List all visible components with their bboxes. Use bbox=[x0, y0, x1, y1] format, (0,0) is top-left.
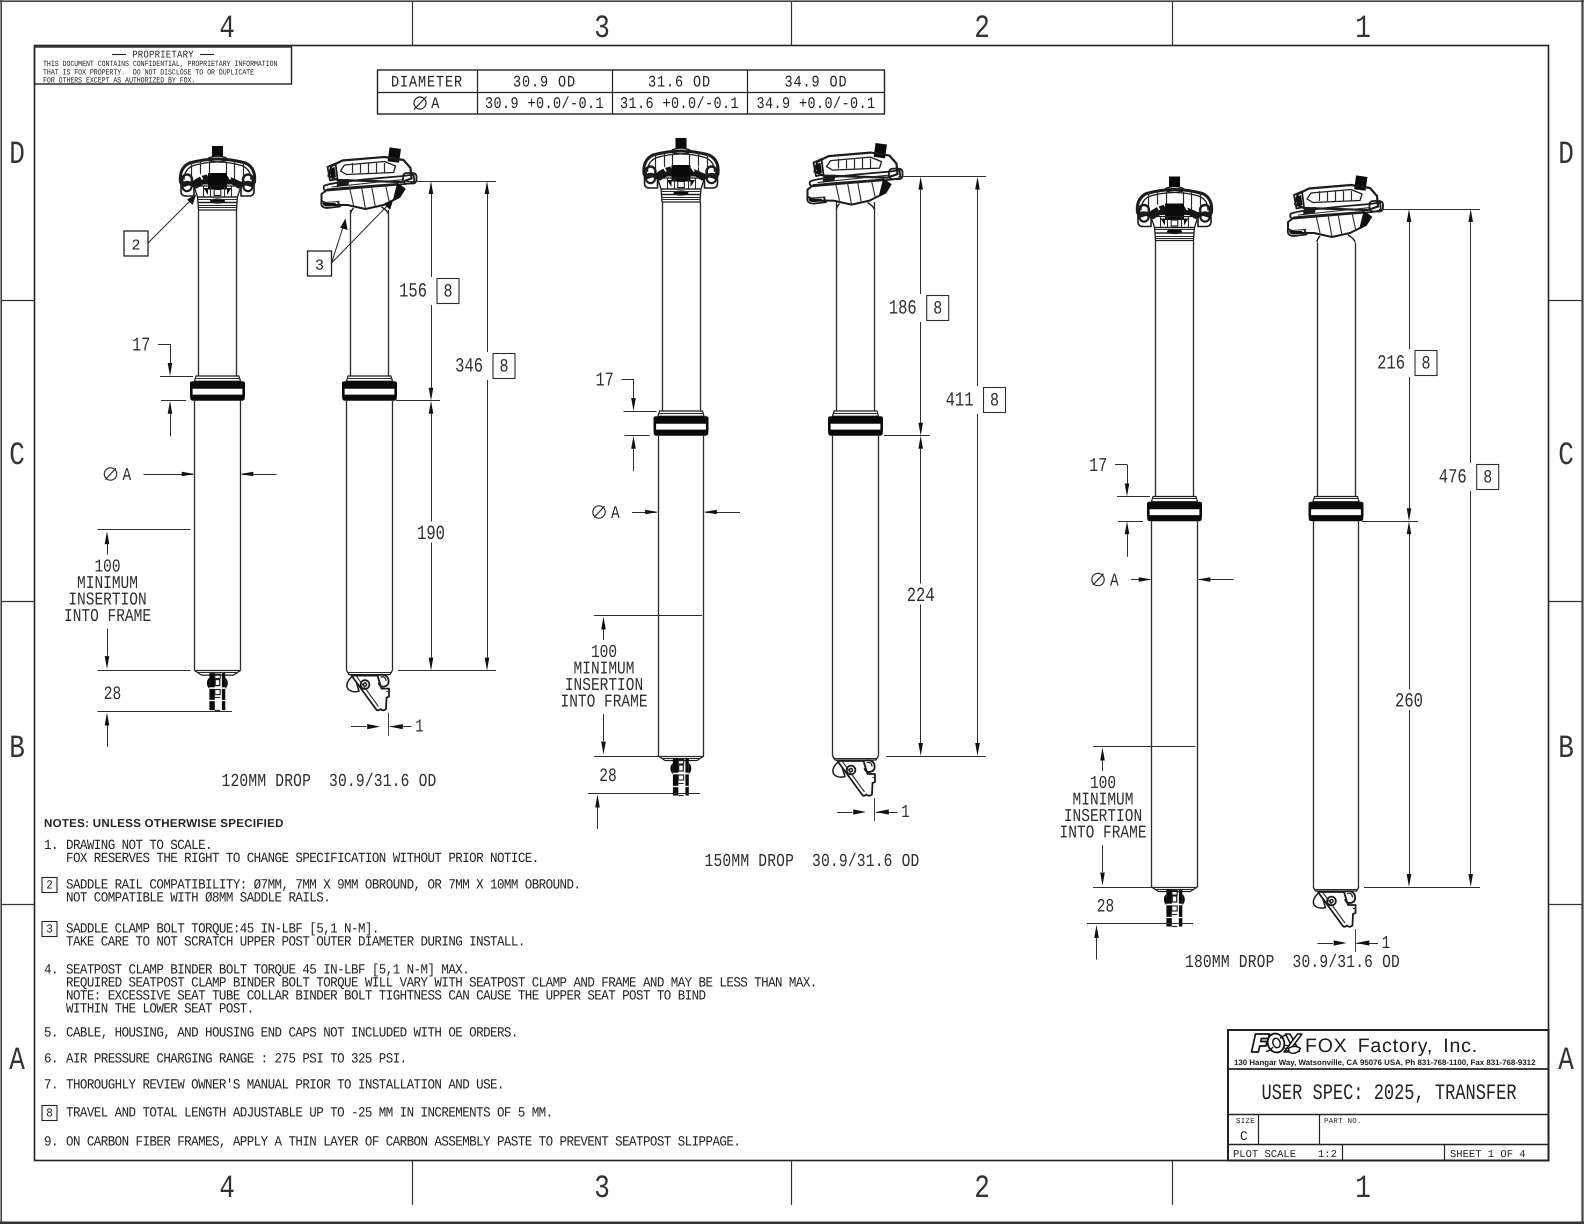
svg-text:C: C bbox=[1558, 437, 1574, 475]
svg-text:186: 186 bbox=[889, 297, 917, 320]
svg-text:A: A bbox=[611, 504, 620, 524]
svg-text:TRAVEL AND TOTAL LENGTH ADJUST: TRAVEL AND TOTAL LENGTH ADJUSTABLE UP TO… bbox=[66, 1105, 553, 1121]
svg-text:8: 8 bbox=[1483, 468, 1492, 489]
svg-text:C: C bbox=[1240, 1129, 1248, 1144]
svg-text:17: 17 bbox=[1089, 456, 1107, 478]
svg-text:THIS DOCUMENT CONTAINS CONFIDE: THIS DOCUMENT CONTAINS CONFIDENTIAL, PRO… bbox=[43, 60, 278, 68]
svg-text:17: 17 bbox=[596, 370, 614, 392]
svg-text:B: B bbox=[1558, 730, 1574, 768]
svg-text:8: 8 bbox=[990, 391, 999, 412]
svg-text:5.: 5. bbox=[44, 1025, 58, 1041]
svg-text:180MM DROP 30.9/31.6 OD: 180MM DROP 30.9/31.6 OD bbox=[1185, 953, 1400, 973]
svg-text:260: 260 bbox=[1395, 690, 1423, 713]
svg-text:224: 224 bbox=[907, 584, 935, 607]
svg-text:150MM DROP 30.9/31.6 OD: 150MM DROP 30.9/31.6 OD bbox=[705, 852, 920, 872]
svg-text:TAKE CARE TO NOT SCRATCH UPPER: TAKE CARE TO NOT SCRATCH UPPER POST OUTE… bbox=[66, 934, 525, 950]
svg-text:2: 2 bbox=[974, 10, 990, 48]
svg-text:190: 190 bbox=[417, 522, 445, 545]
svg-text:8: 8 bbox=[443, 282, 452, 303]
svg-text:28: 28 bbox=[1097, 897, 1114, 918]
svg-text:8: 8 bbox=[46, 1108, 53, 1121]
svg-text:PART NO.: PART NO. bbox=[1324, 1117, 1362, 1126]
svg-text:31.6 +0.0/-0.1: 31.6 +0.0/-0.1 bbox=[620, 96, 739, 114]
svg-text:D: D bbox=[1558, 136, 1574, 174]
svg-text:USER SPEC: 2025, TRANSFER: USER SPEC: 2025, TRANSFER bbox=[1261, 1082, 1516, 1107]
svg-text:INTO FRAME: INTO FRAME bbox=[560, 693, 647, 713]
svg-text:34.9 +0.0/-0.1: 34.9 +0.0/-0.1 bbox=[756, 96, 875, 114]
svg-text:D: D bbox=[9, 136, 25, 174]
svg-text:346: 346 bbox=[455, 355, 483, 378]
svg-text:3: 3 bbox=[594, 1170, 610, 1208]
svg-text:1: 1 bbox=[1382, 934, 1390, 955]
svg-text:THOROUGHLY REVIEW OWNER'S MANU: THOROUGHLY REVIEW OWNER'S MANUAL PRIOR T… bbox=[66, 1077, 504, 1093]
svg-text:28: 28 bbox=[599, 767, 616, 788]
svg-text:7.: 7. bbox=[44, 1077, 58, 1093]
svg-text:3: 3 bbox=[594, 10, 610, 48]
svg-text:AIR PRESSURE CHARGING RANGE :: AIR PRESSURE CHARGING RANGE : 275 PSI TO… bbox=[66, 1051, 407, 1067]
svg-text:1: 1 bbox=[901, 803, 909, 824]
svg-text:1:2: 1:2 bbox=[1318, 1149, 1337, 1161]
svg-text:1: 1 bbox=[1355, 1170, 1371, 1208]
svg-text:17: 17 bbox=[132, 335, 150, 357]
svg-text:8: 8 bbox=[933, 299, 942, 320]
svg-text:C: C bbox=[9, 437, 25, 475]
svg-text:A: A bbox=[9, 1042, 25, 1080]
svg-text:28: 28 bbox=[104, 685, 121, 706]
svg-text:4: 4 bbox=[219, 10, 235, 48]
svg-text:DIAMETER: DIAMETER bbox=[391, 75, 463, 93]
svg-text:216: 216 bbox=[1377, 352, 1405, 375]
svg-text:4.: 4. bbox=[44, 962, 58, 978]
svg-text:30.9 OD: 30.9 OD bbox=[513, 75, 576, 93]
svg-text:3: 3 bbox=[315, 258, 324, 275]
svg-text:6.: 6. bbox=[44, 1051, 58, 1067]
svg-text:FOR OTHERS EXCEPT AS AUTHORIZE: FOR OTHERS EXCEPT AS AUTHORIZED BY FOX. bbox=[43, 77, 195, 85]
svg-text:30.9 +0.0/-0.1: 30.9 +0.0/-0.1 bbox=[485, 96, 604, 114]
svg-text:B: B bbox=[9, 730, 25, 768]
svg-text:A: A bbox=[431, 96, 441, 114]
svg-text:SIZE: SIZE bbox=[1236, 1117, 1255, 1126]
svg-text:1.: 1. bbox=[44, 838, 58, 854]
svg-text:FOX Factory, Inc.: FOX Factory, Inc. bbox=[1305, 1035, 1478, 1057]
svg-text:A: A bbox=[123, 466, 132, 486]
svg-text:130 Hangar Way, Watsonville, C: 130 Hangar Way, Watsonville, CA 95076 US… bbox=[1234, 1058, 1536, 1067]
svg-text:34.9 OD: 34.9 OD bbox=[784, 75, 847, 93]
svg-text:2: 2 bbox=[46, 880, 53, 893]
svg-text:8: 8 bbox=[499, 357, 508, 378]
svg-text:156: 156 bbox=[399, 280, 427, 303]
svg-text:INTO FRAME: INTO FRAME bbox=[1059, 824, 1146, 844]
svg-text:2: 2 bbox=[974, 1170, 990, 1208]
svg-text:4: 4 bbox=[219, 1170, 235, 1208]
svg-text:INTO FRAME: INTO FRAME bbox=[64, 607, 151, 627]
svg-text:A: A bbox=[1558, 1042, 1574, 1080]
svg-text:ON CARBON FIBER FRAMES, APPLY: ON CARBON FIBER FRAMES, APPLY A THIN LAY… bbox=[66, 1134, 740, 1150]
svg-text:FOX RESERVES THE RIGHT TO CHAN: FOX RESERVES THE RIGHT TO CHANGE SPECIFI… bbox=[66, 851, 539, 867]
svg-text:WITHIN THE LOWER SEAT POST.: WITHIN THE LOWER SEAT POST. bbox=[66, 1001, 254, 1017]
svg-text:NOT COMPATIBLE WITH Ø8MM SADDL: NOT COMPATIBLE WITH Ø8MM SADDLE RAILS. bbox=[66, 890, 330, 906]
svg-text:9.: 9. bbox=[44, 1134, 58, 1150]
svg-text:2: 2 bbox=[131, 238, 140, 255]
svg-text:SHEET 1 OF 4: SHEET 1 OF 4 bbox=[1450, 1149, 1526, 1161]
svg-text:1: 1 bbox=[415, 717, 423, 738]
svg-text:1: 1 bbox=[1355, 10, 1371, 48]
svg-text:8: 8 bbox=[1421, 354, 1430, 375]
svg-text:PLOT SCALE: PLOT SCALE bbox=[1233, 1149, 1296, 1161]
svg-text:31.6 OD: 31.6 OD bbox=[648, 75, 711, 93]
svg-text:476: 476 bbox=[1439, 466, 1467, 489]
svg-text:NOTES: UNLESS OTHERWISE SPECIF: NOTES: UNLESS OTHERWISE SPECIFIED bbox=[44, 818, 284, 830]
svg-text:A: A bbox=[1110, 572, 1119, 592]
svg-text:3: 3 bbox=[46, 924, 53, 937]
svg-text:411: 411 bbox=[946, 389, 974, 412]
svg-text:CABLE, HOUSING, AND HOUSING EN: CABLE, HOUSING, AND HOUSING END CAPS NOT… bbox=[66, 1025, 518, 1041]
svg-text:120MM DROP 30.9/31.6 OD: 120MM DROP 30.9/31.6 OD bbox=[222, 772, 437, 792]
